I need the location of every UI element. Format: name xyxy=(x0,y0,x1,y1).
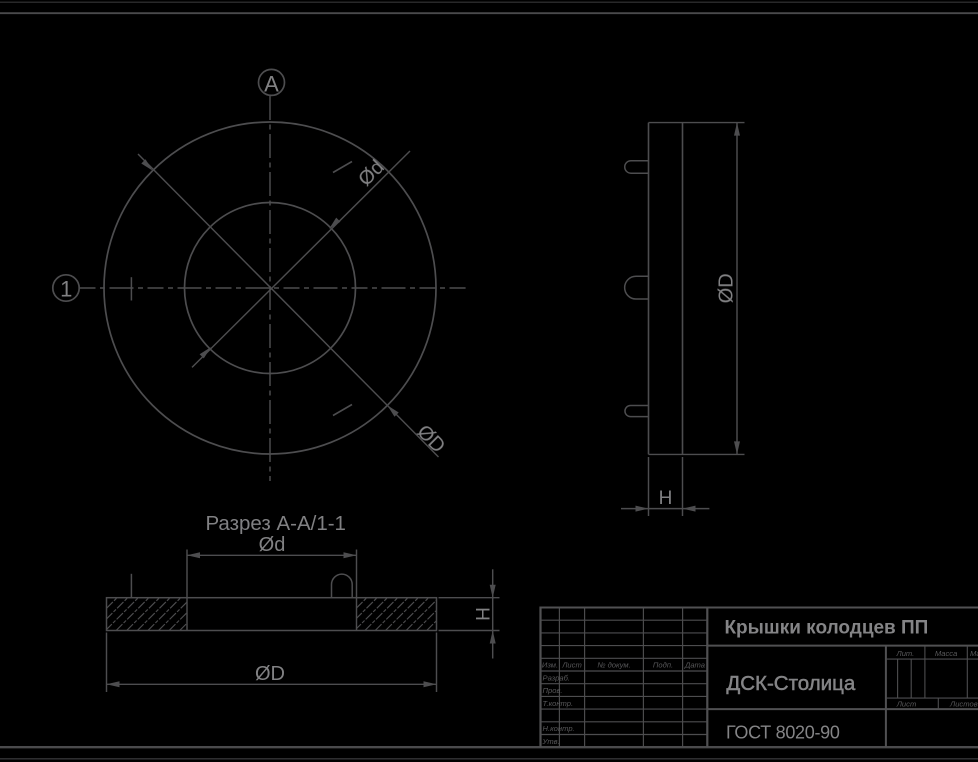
svg-text:H: H xyxy=(659,488,673,509)
svg-text:Дата: Дата xyxy=(684,661,705,670)
svg-text:Разрез А-А/1-1: Разрез А-А/1-1 xyxy=(205,512,346,535)
svg-text:Изм.: Изм. xyxy=(542,661,558,670)
svg-text:Подп.: Подп. xyxy=(653,661,673,670)
svg-text:Лист: Лист xyxy=(896,699,917,708)
svg-text:Утв.: Утв. xyxy=(542,737,560,746)
svg-text:ØD: ØD xyxy=(716,273,738,303)
svg-text:Т.контр.: Т.контр. xyxy=(543,699,574,708)
svg-text:Разраб.: Разраб. xyxy=(543,673,570,682)
svg-text:Н.контр.: Н.контр. xyxy=(543,724,575,733)
svg-text:Масса: Масса xyxy=(935,649,957,658)
svg-text:Лист: Лист xyxy=(561,661,582,670)
svg-text:ДСК-Столица: ДСК-Столица xyxy=(726,672,856,695)
svg-text:H: H xyxy=(474,607,495,621)
svg-text:№ докум.: № докум. xyxy=(597,661,630,670)
svg-text:ГОСТ 8020-90: ГОСТ 8020-90 xyxy=(726,723,840,743)
svg-text:Пров.: Пров. xyxy=(543,686,563,695)
svg-text:1: 1 xyxy=(60,277,72,302)
svg-text:Листов: Листов xyxy=(949,699,978,708)
svg-text:А: А xyxy=(264,71,279,96)
svg-text:Крышки колодцев ПП: Крышки колодцев ПП xyxy=(724,617,928,638)
svg-text:Масштаб: Масштаб xyxy=(970,649,978,658)
svg-text:ØD: ØD xyxy=(255,663,285,685)
svg-text:Лит.: Лит. xyxy=(896,649,915,658)
svg-text:Ød: Ød xyxy=(259,534,286,556)
